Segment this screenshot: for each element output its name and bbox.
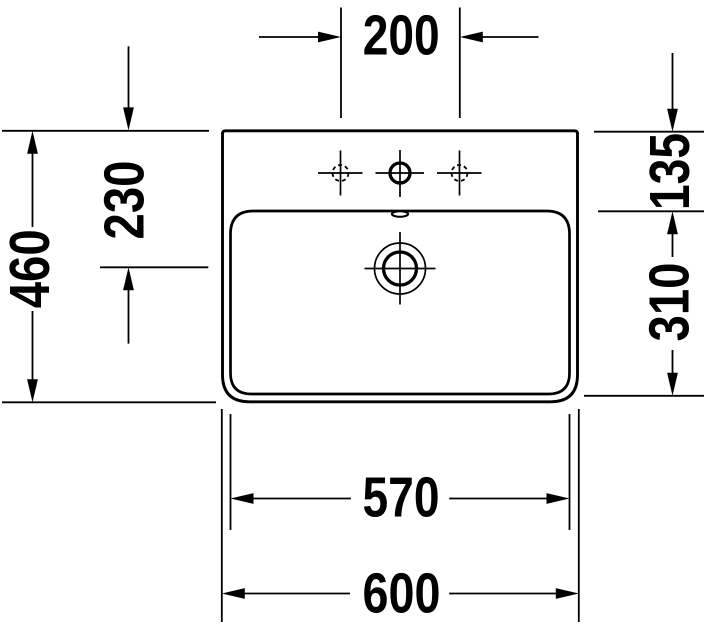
svg-text:135: 135 (638, 133, 701, 210)
svg-text:310: 310 (638, 263, 701, 342)
svg-text:200: 200 (363, 4, 440, 67)
svg-text:570: 570 (363, 466, 440, 529)
svg-text:230: 230 (93, 161, 156, 240)
svg-text:460: 460 (0, 229, 61, 308)
svg-text:600: 600 (363, 562, 441, 625)
